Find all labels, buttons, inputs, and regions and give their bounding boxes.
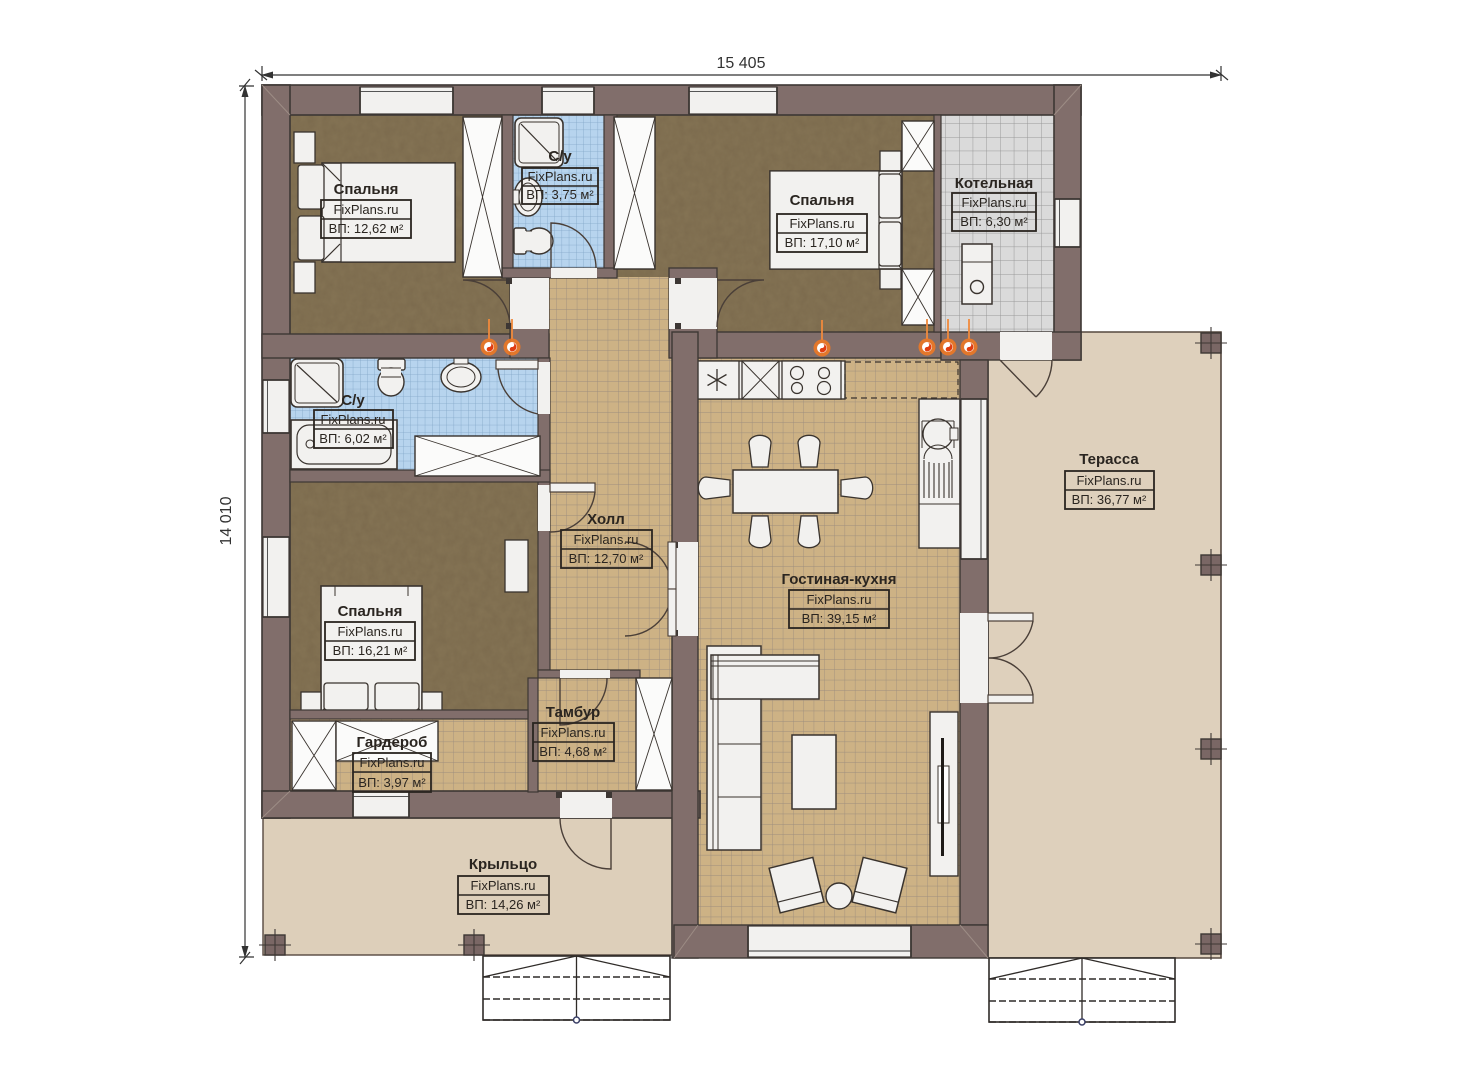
svg-text:FixPlans.ru: FixPlans.ru	[337, 624, 402, 639]
svg-text:Спальня: Спальня	[338, 603, 403, 620]
svg-text:ВП: 36,77 м²: ВП: 36,77 м²	[1072, 492, 1147, 507]
svg-text:Крыльцо: Крыльцо	[469, 856, 537, 873]
svg-text:ВП: 14,26 м²: ВП: 14,26 м²	[466, 897, 541, 912]
svg-text:FixPlans.ru: FixPlans.ru	[961, 195, 1026, 210]
svg-text:14 010: 14 010	[218, 496, 235, 545]
svg-text:ВП: 4,68 м²: ВП: 4,68 м²	[539, 744, 607, 759]
svg-text:FixPlans.ru: FixPlans.ru	[1076, 473, 1141, 488]
svg-text:ВП: 6,30 м²: ВП: 6,30 м²	[960, 214, 1028, 229]
svg-text:ВП: 3,75 м²: ВП: 3,75 м²	[526, 187, 594, 202]
svg-text:Котельная: Котельная	[955, 175, 1034, 192]
svg-text:FixPlans.ru: FixPlans.ru	[540, 725, 605, 740]
svg-text:FixPlans.ru: FixPlans.ru	[806, 592, 871, 607]
svg-text:15 405: 15 405	[717, 55, 766, 72]
svg-text:ВП: 6,02 м²: ВП: 6,02 м²	[319, 431, 387, 446]
svg-text:Спальня: Спальня	[790, 192, 855, 209]
svg-text:С/у: С/у	[341, 392, 365, 409]
svg-text:FixPlans.ru: FixPlans.ru	[527, 169, 592, 184]
svg-text:FixPlans.ru: FixPlans.ru	[573, 532, 638, 547]
svg-text:Гостиная-кухня: Гостиная-кухня	[782, 571, 897, 588]
svg-text:ВП: 12,62 м²: ВП: 12,62 м²	[329, 221, 404, 236]
svg-text:FixPlans.ru: FixPlans.ru	[470, 878, 535, 893]
svg-text:ВП: 16,21 м²: ВП: 16,21 м²	[333, 643, 408, 658]
svg-text:ВП: 39,15 м²: ВП: 39,15 м²	[802, 611, 877, 626]
svg-text:FixPlans.ru: FixPlans.ru	[359, 755, 424, 770]
svg-text:Гардероб: Гардероб	[357, 734, 428, 751]
svg-text:Холл: Холл	[587, 511, 625, 528]
svg-text:С/у: С/у	[548, 148, 572, 165]
svg-text:ВП: 3,97 м²: ВП: 3,97 м²	[358, 775, 426, 790]
svg-text:FixPlans.ru: FixPlans.ru	[320, 412, 385, 427]
svg-text:Спальня: Спальня	[334, 181, 399, 198]
svg-text:ВП: 17,10 м²: ВП: 17,10 м²	[785, 235, 860, 250]
svg-text:FixPlans.ru: FixPlans.ru	[333, 202, 398, 217]
svg-text:Тамбур: Тамбур	[546, 704, 600, 721]
svg-text:FixPlans.ru: FixPlans.ru	[789, 216, 854, 231]
svg-text:ВП: 12,70 м²: ВП: 12,70 м²	[569, 551, 644, 566]
svg-text:Терасса: Терасса	[1079, 451, 1139, 468]
